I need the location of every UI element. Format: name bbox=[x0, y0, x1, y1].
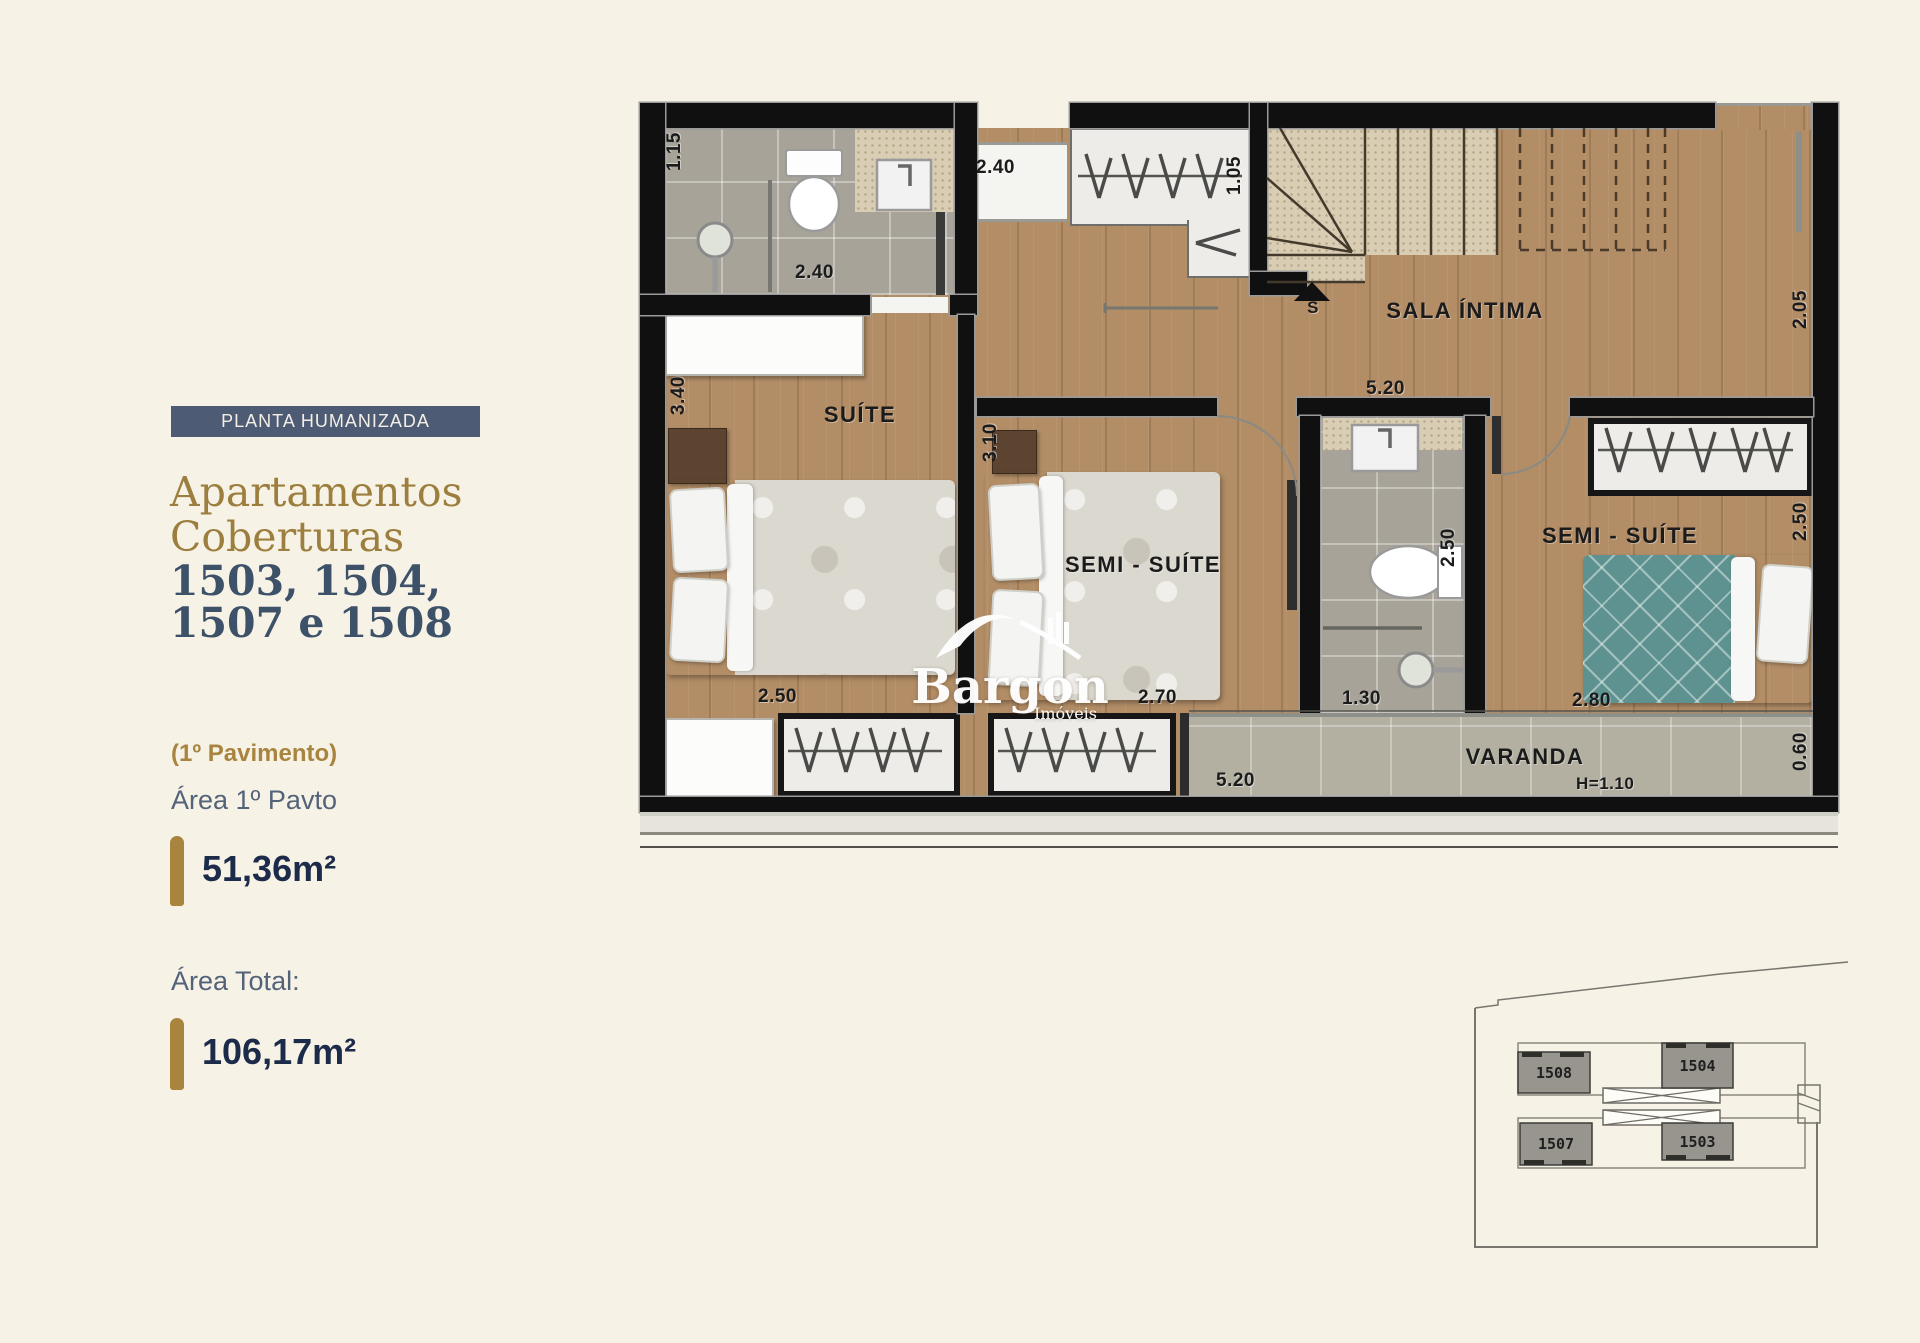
brand-tagline: Imóveis bbox=[1034, 704, 1097, 723]
entry-door-leaf bbox=[1796, 132, 1802, 232]
dim-semi2-h: 2.50 bbox=[1790, 502, 1812, 541]
dim-varanda-rail: H=1.10 bbox=[1576, 774, 1634, 794]
stairs-marker: S bbox=[1298, 298, 1328, 318]
shower2-icon bbox=[1399, 653, 1433, 687]
toilet1-bowl bbox=[789, 177, 839, 231]
sala-detail-line bbox=[1105, 303, 1218, 313]
brand-roof-icon bbox=[930, 600, 1090, 664]
unit-numbers: 1503, 1504, 1507 e 1508 bbox=[170, 560, 453, 644]
dim-semi1-w: 2.70 bbox=[1138, 687, 1177, 709]
toilet1-tank bbox=[786, 150, 842, 176]
area-floor-accent-bar bbox=[170, 836, 184, 906]
dim-semi1-h: 3.10 bbox=[980, 423, 1002, 462]
key-plan-unit-1503: 1503 bbox=[1662, 1123, 1733, 1160]
key-plan: 1508 1504 1507 1503 bbox=[1390, 960, 1850, 1260]
room-label-semi1: SEMI - SUÍTE bbox=[1048, 552, 1238, 578]
page-title-line1: Apartamentos bbox=[170, 470, 463, 515]
page-title: Apartamentos Coberturas bbox=[170, 470, 463, 560]
dim-closet-top: 1.05 bbox=[1224, 156, 1246, 195]
stairs-dashed bbox=[1520, 128, 1665, 250]
area-total-label: Área Total: bbox=[171, 966, 300, 997]
shower1-icon bbox=[698, 223, 732, 257]
area-floor-value: 51,36m² bbox=[202, 848, 336, 890]
room-label-semi2: SEMI - SUÍTE bbox=[1525, 523, 1715, 549]
toilet2-bowl bbox=[1370, 546, 1446, 598]
plan-type-badge-label: PLANTA HUMANIZADA bbox=[221, 411, 430, 432]
unit-numbers-line2: 1507 e 1508 bbox=[170, 602, 453, 644]
dim-varanda-w: 5.20 bbox=[1216, 770, 1255, 792]
key-plan-unit-1508: 1508 bbox=[1518, 1052, 1590, 1093]
key-plan-unit-1507: 1507 bbox=[1520, 1123, 1592, 1165]
dim-sala-w: 5.20 bbox=[1366, 378, 1405, 400]
key-plan-unit-1504: 1504 bbox=[1662, 1043, 1733, 1088]
dim-hall: 2.40 bbox=[976, 157, 1015, 179]
semi2-door-swing bbox=[1501, 416, 1570, 474]
dim-semi2-w: 2.80 bbox=[1572, 690, 1611, 712]
page: PLANTA HUMANIZADA Apartamentos Cobertura… bbox=[0, 0, 1920, 1343]
room-label-varanda: VARANDA bbox=[1440, 744, 1610, 770]
room-label-sala: SALA ÍNTIMA bbox=[1370, 298, 1560, 324]
brand-logo: Bargon Imóveis bbox=[895, 600, 1125, 723]
floor-plan: SUÍTE SEMI - SUÍTE SEMI - SUÍTE SALA ÍNT… bbox=[640, 100, 1838, 848]
dim-bath1: 2.40 bbox=[795, 262, 834, 284]
bathroom1-door-leaf bbox=[936, 212, 945, 295]
area-total-value: 106,17m² bbox=[202, 1031, 356, 1073]
semi1-door-swing bbox=[1217, 416, 1297, 496]
dim-shower: 1.15 bbox=[664, 132, 686, 171]
dim-bath2-h: 2.50 bbox=[1438, 528, 1460, 567]
key-plan-outline bbox=[1390, 960, 1850, 1260]
dim-suite-w: 2.50 bbox=[758, 686, 797, 708]
area-floor-label: Área 1º Pavto bbox=[171, 785, 337, 816]
dim-entry: 2.05 bbox=[1790, 290, 1812, 329]
sink2-basin bbox=[1352, 425, 1418, 471]
dim-suite-h: 3.40 bbox=[668, 376, 690, 415]
plan-type-badge: PLANTA HUMANIZADA bbox=[171, 406, 480, 437]
plan-linework bbox=[640, 100, 1838, 848]
unit-numbers-line1: 1503, 1504, bbox=[170, 560, 453, 602]
page-title-line2: Coberturas bbox=[170, 515, 463, 560]
floor-note: (1º Pavimento) bbox=[171, 740, 337, 768]
dim-varanda-h: 0.60 bbox=[1790, 732, 1812, 771]
area-total-accent-bar bbox=[170, 1018, 184, 1090]
dim-bath2-w: 1.30 bbox=[1342, 688, 1381, 710]
room-label-suite: SUÍTE bbox=[770, 402, 950, 428]
